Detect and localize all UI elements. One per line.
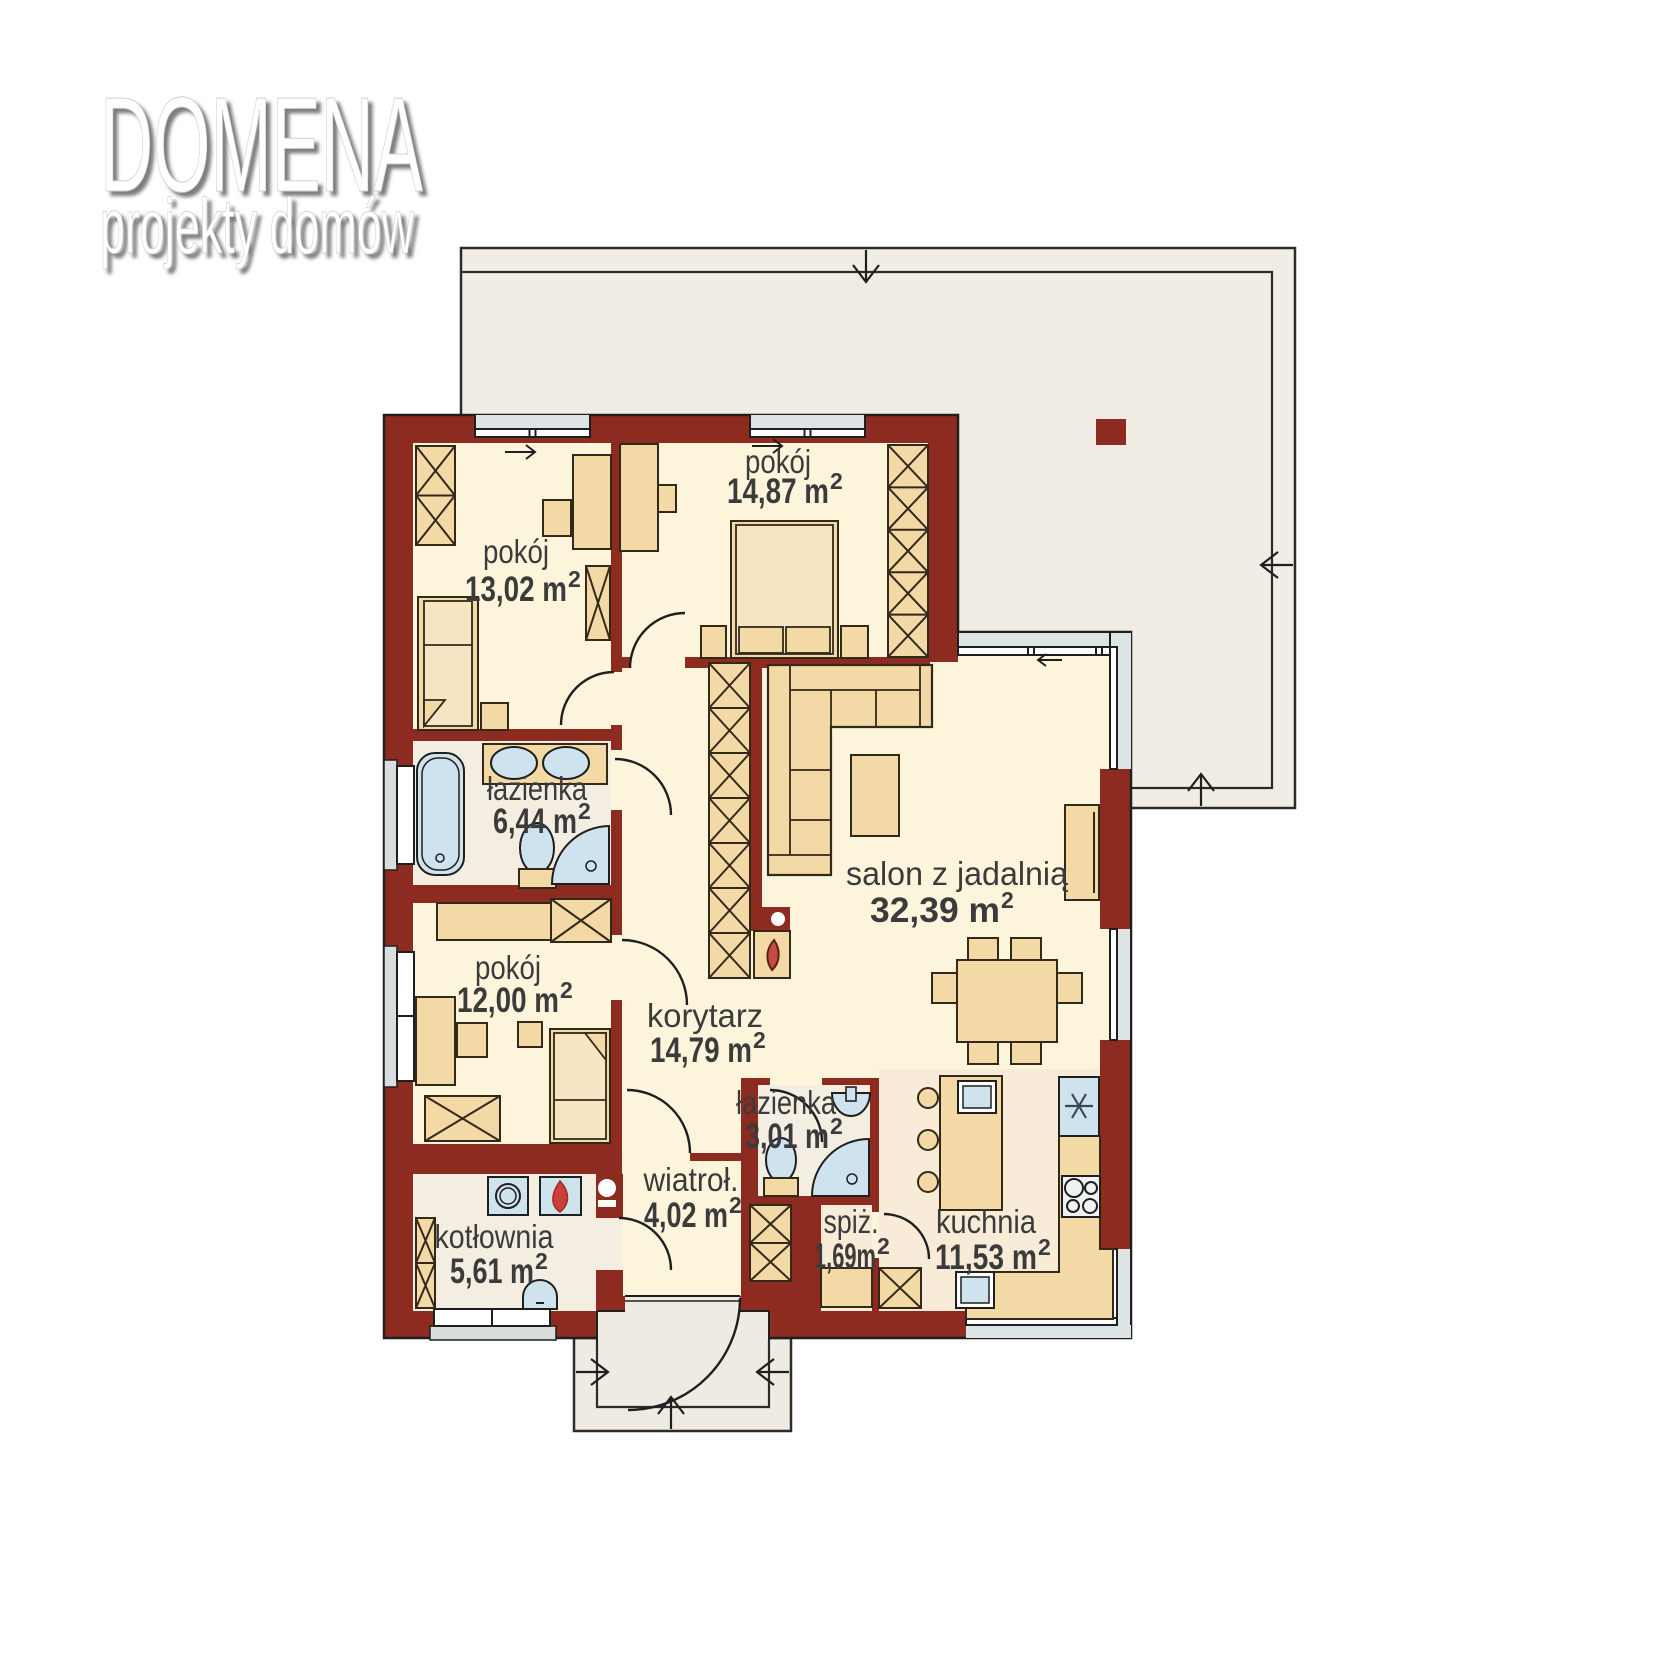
svg-text:2: 2 [830,1113,843,1139]
svg-text:2: 2 [1038,1234,1051,1260]
svg-text:14,87 m: 14,87 m [727,472,829,511]
svg-text:2: 2 [753,1027,766,1053]
svg-text:1,69m: 1,69m [814,1237,876,1276]
svg-text:5,61 m: 5,61 m [450,1252,534,1291]
svg-text:11,53 m: 11,53 m [935,1238,1037,1277]
svg-text:2: 2 [560,977,573,1003]
svg-text:salon z jadalnią: salon z jadalnią [846,855,1069,892]
svg-text:32,39 m: 32,39 m [870,891,1000,930]
svg-text:13,02 m: 13,02 m [465,570,567,609]
svg-text:14,79 m: 14,79 m [650,1031,752,1070]
svg-text:2: 2 [729,1192,742,1218]
svg-text:4,02 m: 4,02 m [644,1196,728,1235]
svg-text:2: 2 [568,566,581,592]
svg-text:12,00 m: 12,00 m [457,981,559,1020]
svg-text:2: 2 [830,468,843,494]
svg-text:2: 2 [1001,887,1014,913]
svg-text:korytarz: korytarz [647,997,763,1034]
svg-text:3,01 m: 3,01 m [745,1117,829,1156]
svg-text:wiatroł.: wiatroł. [643,1161,739,1198]
svg-text:spiż.: spiż. [824,1203,879,1240]
svg-text:2: 2 [877,1233,890,1259]
svg-text:kuchnia: kuchnia [936,1203,1037,1240]
svg-text:2: 2 [535,1248,548,1274]
svg-text:2: 2 [578,798,591,824]
svg-text:łazienka: łazienka [736,1084,837,1121]
svg-text:projekty domów: projekty domów [100,183,415,270]
svg-text:pokój: pokój [483,533,549,570]
svg-text:6,44 m: 6,44 m [493,802,577,841]
